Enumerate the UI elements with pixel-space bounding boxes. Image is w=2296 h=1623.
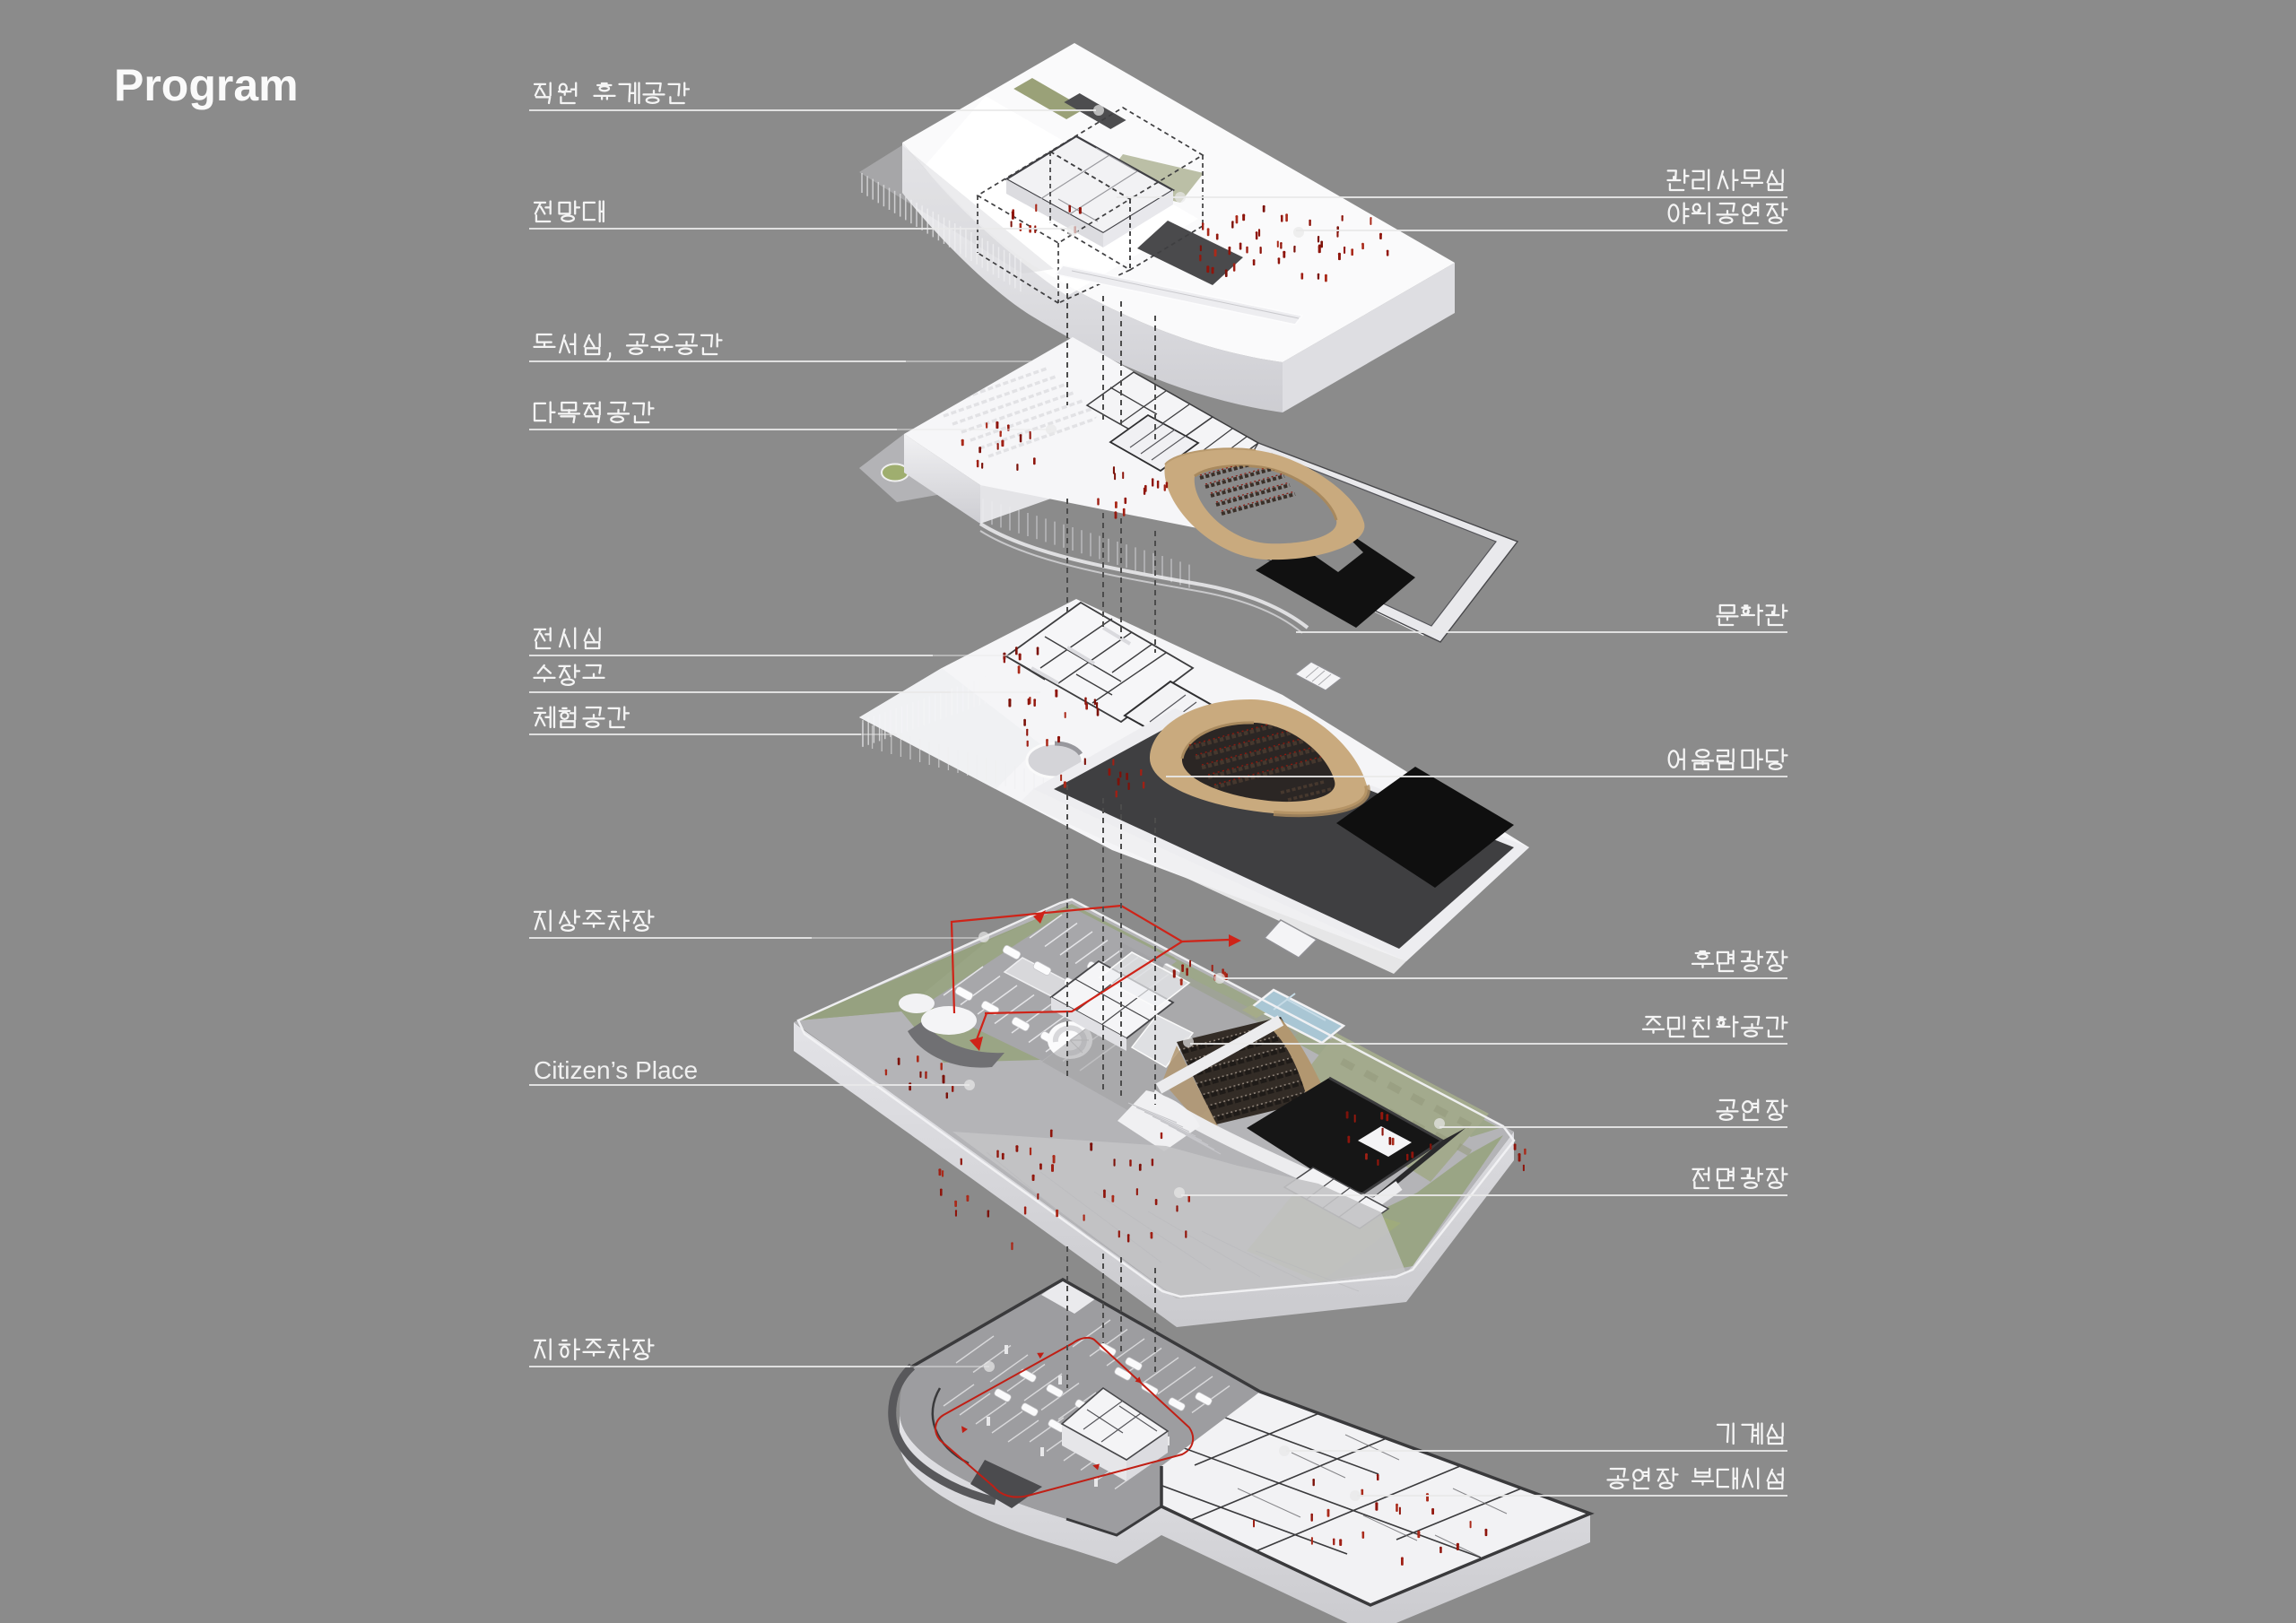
svg-text:Program: Program — [114, 60, 299, 110]
svg-text:Citizen’s Place: Citizen’s Place — [534, 1056, 698, 1084]
